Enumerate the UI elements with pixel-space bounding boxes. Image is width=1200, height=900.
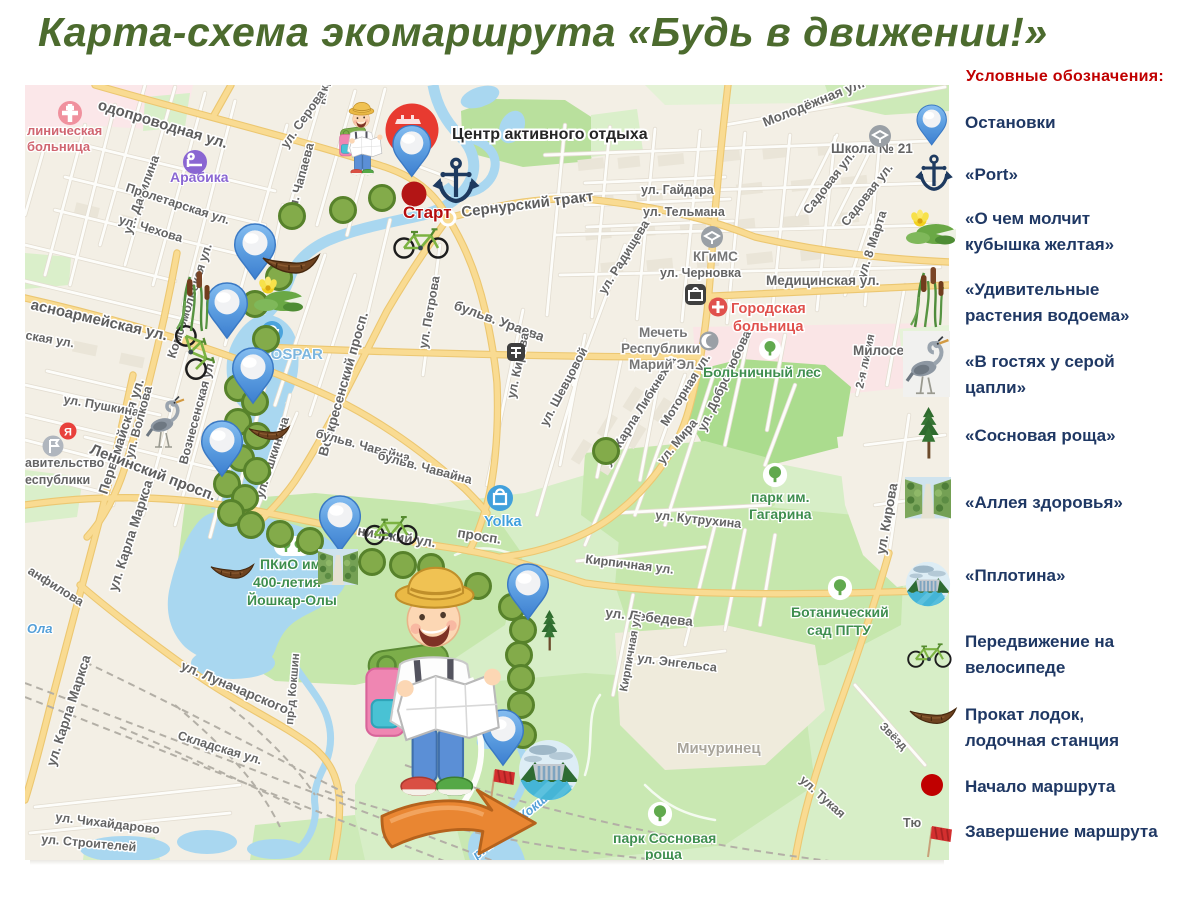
svg-text:КГиМС: КГиМС [693,249,738,264]
svg-text:Yolka: Yolka [484,514,523,530]
svg-text:400-летия: 400-летия [253,574,321,590]
svg-text:парк им.: парк им. [751,489,810,505]
svg-text:Ботанический: Ботанический [791,604,889,620]
svg-text:Йошкар-Олы: Йошкар-Олы [247,591,337,608]
svg-text:больница: больница [27,139,91,154]
svg-text:Республики: Республики [621,341,700,356]
svg-text:Центр активного отдыха: Центр активного отдыха [452,126,648,143]
svg-text:еспублики: еспублики [25,473,90,487]
svg-text:Старт: Старт [403,203,452,222]
svg-text:Ола: Ола [27,621,52,636]
svg-text:сад ПГТУ: сад ПГТУ [807,622,871,638]
svg-text:Мичуринец: Мичуринец [677,740,761,757]
svg-text:линическая: линическая [27,123,102,138]
svg-text:больница: больница [733,319,804,335]
svg-text:ул. Гайдара: ул. Гайдара [641,183,715,197]
svg-text:ПКиО им.: ПКиО им. [260,556,325,572]
svg-text:Марий Эл: Марий Эл [629,357,694,372]
svg-text:Медицинская ул.: Медицинская ул. [766,273,879,288]
svg-text:роща: роща [645,846,682,860]
svg-text:авительство: авительство [25,456,105,470]
svg-text:ул. Черновка: ул. Черновка [660,266,742,280]
svg-text:ул. Тельмана: ул. Тельмана [643,205,726,219]
svg-text:Городская: Городская [731,301,806,317]
svg-text:Я: Я [64,427,72,439]
svg-text:парк Сосновая: парк Сосновая [613,830,716,846]
svg-text:Больничный лес: Больничный лес [703,364,821,380]
svg-text:Гагарина: Гагарина [749,506,812,522]
svg-text:Мечеть: Мечеть [639,325,688,340]
